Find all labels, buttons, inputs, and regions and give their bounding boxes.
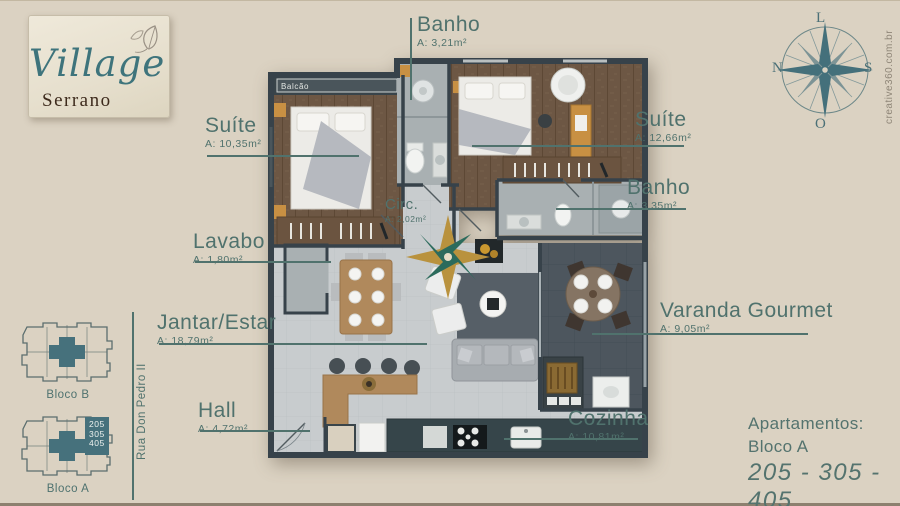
leader-suite-1 (207, 155, 359, 157)
room-label-circ: Circ. A: 2,02m² (385, 197, 426, 224)
info-unit-numbers: 205 - 305 - 405 (748, 459, 900, 506)
room-area: A: 4,72m² (198, 423, 248, 435)
balcao-label: Balcão (281, 82, 309, 91)
room-name: Cozinha (568, 408, 649, 430)
keyplan-unit-numbers: 205 305 405 (89, 420, 105, 449)
room-label-lavabo: Lavabo A: 1,80m² (193, 231, 265, 266)
floorplan-poster: Village Serrano L N (0, 0, 900, 506)
room-label-hall: Hall A: 4,72m² (198, 400, 248, 435)
info-block-name: Bloco A (748, 437, 900, 457)
room-name: Suíte (205, 115, 261, 137)
floor-plan: Balcão (263, 57, 652, 459)
watermark-credit: creative360.com.br (884, 14, 895, 124)
info-title: Apartamentos: (748, 414, 900, 434)
logo-subtitle: Serrano (42, 90, 112, 112)
compass-letter-s: S (864, 60, 872, 77)
logo-title: Village (29, 42, 161, 85)
logo-card: Village Serrano (28, 15, 170, 118)
room-name: Banho (417, 14, 480, 36)
room-area: A: 12,66m² (635, 132, 691, 144)
unit-number: 405 (89, 439, 105, 449)
room-area: A: 3,21m² (417, 37, 480, 49)
room-area: A: 3,35m² (627, 200, 690, 212)
room-name: Circ. (385, 197, 426, 213)
compass-letter-n: N (772, 60, 783, 77)
room-name: Varanda Gourmet (660, 300, 833, 322)
room-name: Banho (627, 177, 690, 199)
room-area: A: 10,81m² (568, 431, 649, 443)
leader-suite-2 (472, 145, 684, 147)
room-name: Hall (198, 400, 248, 422)
room-label-banho-2: Banho A: 3,35m² (627, 177, 690, 212)
room-area: A: 2,02m² (385, 214, 426, 224)
room-area: A: 10,35m² (205, 138, 261, 150)
room-label-varanda-gourmet: Varanda Gourmet A: 9,05m² (660, 300, 833, 335)
leader-banho-1 (410, 18, 412, 100)
top-border-line (0, 0, 900, 1)
compass-letter-l: L (816, 10, 825, 27)
room-label-jantar-estar: Jantar/Estar A: 18,79m² (157, 312, 276, 347)
room-label-banho-1: Banho A: 3,21m² (417, 14, 480, 49)
floor-plan-rendering: Balcão (263, 57, 652, 459)
room-area: A: 1,80m² (193, 254, 265, 266)
keyplan-bloco-b (17, 315, 119, 389)
keyplan-bloco-b-icon (17, 315, 119, 389)
apartment-info: Apartamentos: Bloco A 205 - 305 - 405 A:… (748, 414, 900, 506)
room-label-suite-2: Suíte A: 12,66m² (635, 109, 691, 144)
compass-letter-o: O (815, 116, 826, 133)
keyplan-bloco-b-label: Bloco B (17, 389, 119, 401)
room-area: A: 18,79m² (157, 335, 276, 347)
room-name: Lavabo (193, 231, 265, 253)
room-name: Suíte (635, 109, 691, 131)
room-name: Jantar/Estar (157, 312, 276, 334)
street-divider-line (132, 312, 134, 500)
keyplan-bloco-a-label: Bloco A (17, 483, 119, 495)
room-label-suite-1: Suíte A: 10,35m² (205, 115, 261, 150)
room-area: A: 9,05m² (660, 323, 833, 335)
room-label-cozinha: Cozinha A: 10,81m² (568, 408, 649, 443)
compass-rose: L N S O (770, 8, 880, 136)
street-name: Rua Don Pedro II (136, 330, 148, 460)
